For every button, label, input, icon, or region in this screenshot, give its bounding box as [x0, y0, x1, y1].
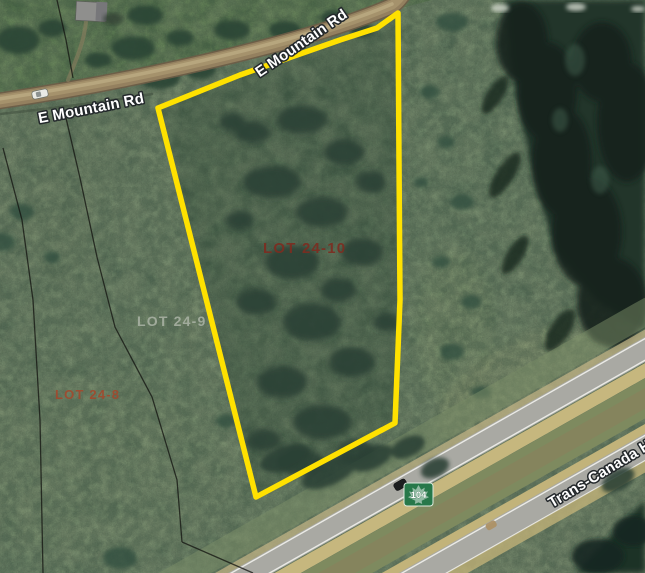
lot-24-9-label: LOT 24-9 [137, 313, 207, 329]
lot-24-8-label: LOT 24-8 [55, 387, 120, 402]
map-canvas[interactable]: 104 E Mountain Rd E Mountain Rd Trans-Ca… [0, 0, 645, 573]
lot-24-10-label: LOT 24-10 [263, 240, 346, 257]
shield-number: 104 [411, 490, 428, 501]
highway-104-shield: 104 [404, 483, 433, 506]
satellite-imagery: 104 E Mountain Rd E Mountain Rd Trans-Ca… [0, 0, 645, 573]
